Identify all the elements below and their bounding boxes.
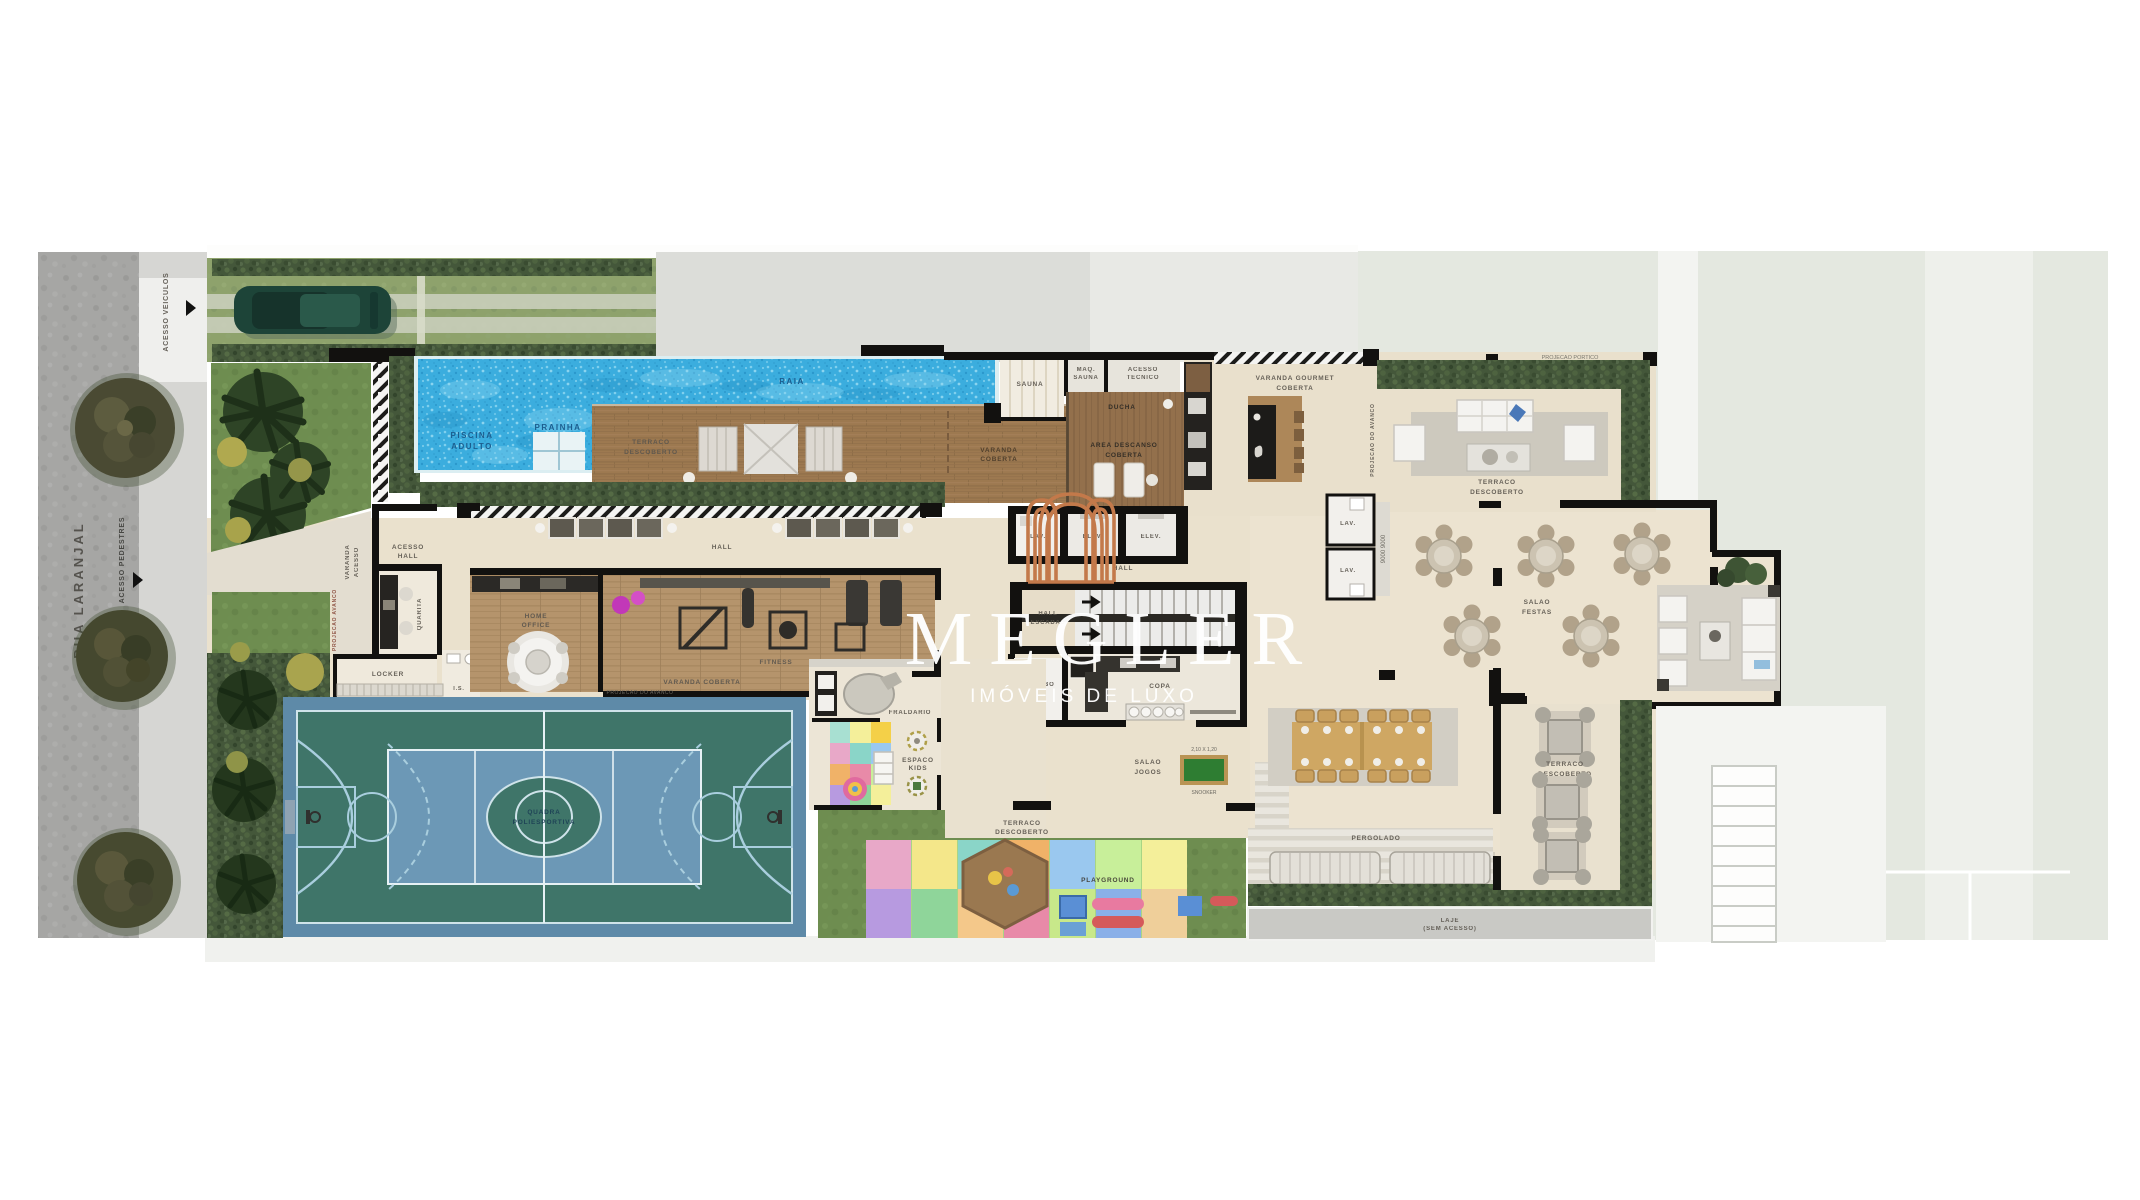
svg-text:DESCOBERTO: DESCOBERTO <box>624 449 678 456</box>
svg-text:DUCHA: DUCHA <box>1108 404 1135 411</box>
svg-text:VARANDA GOURMET: VARANDA GOURMET <box>1256 375 1335 382</box>
svg-text:COBERTA: COBERTA <box>1276 385 1313 392</box>
svg-text:TERRACO: TERRACO <box>1546 761 1584 768</box>
svg-text:HALL: HALL <box>712 544 733 551</box>
svg-text:PLAYGROUND: PLAYGROUND <box>1081 877 1135 884</box>
svg-text:JOGOS: JOGOS <box>1134 769 1161 776</box>
svg-text:SAUNA: SAUNA <box>1016 381 1043 388</box>
svg-text:KIDS: KIDS <box>909 765 928 772</box>
svg-text:ELEV.: ELEV. <box>1141 534 1162 540</box>
svg-text:2,10 X 1,20: 2,10 X 1,20 <box>1191 747 1217 753</box>
svg-text:ACESSO: ACESSO <box>354 547 360 577</box>
svg-text:RAIA: RAIA <box>779 377 805 386</box>
svg-text:PISCINA: PISCINA <box>451 431 494 440</box>
svg-text:VARANDA: VARANDA <box>345 544 351 579</box>
svg-text:TERRACO: TERRACO <box>1003 820 1041 827</box>
svg-text:LOCKER: LOCKER <box>372 671 404 678</box>
svg-text:SALAO: SALAO <box>1135 759 1162 766</box>
svg-text:PERGOLADO: PERGOLADO <box>1351 835 1400 842</box>
svg-text:PROJECAO DO AVANCO: PROJECAO DO AVANCO <box>607 690 674 696</box>
svg-text:IMÓVEIS DE LUXO: IMÓVEIS DE LUXO <box>970 685 1198 707</box>
svg-text:SAUNA: SAUNA <box>1073 375 1098 381</box>
svg-text:FITNESS: FITNESS <box>759 659 792 666</box>
svg-text:HALL: HALL <box>1113 565 1134 572</box>
svg-text:TERRACO: TERRACO <box>632 439 670 446</box>
svg-text:PROJECAO DO AVANCO: PROJECAO DO AVANCO <box>1370 403 1376 476</box>
svg-text:SALAO: SALAO <box>1524 599 1551 606</box>
svg-text:OFFICE: OFFICE <box>522 622 551 629</box>
svg-text:LAJE: LAJE <box>1441 918 1460 924</box>
svg-text:MEGLER: MEGLER <box>905 597 1319 681</box>
svg-text:VARANDA: VARANDA <box>980 447 1018 454</box>
svg-text:COBERTA: COBERTA <box>1105 452 1142 459</box>
svg-text:FRALDARIO: FRALDARIO <box>889 710 932 716</box>
svg-text:QUARITA: QUARITA <box>417 598 423 631</box>
svg-text:ACESSO VEICULOS: ACESSO VEICULOS <box>163 272 170 351</box>
svg-text:COBERTA: COBERTA <box>980 456 1017 463</box>
svg-text:HOME: HOME <box>525 613 548 620</box>
svg-text:ACESSO: ACESSO <box>1128 367 1158 373</box>
svg-text:VARANDA COBERTA: VARANDA COBERTA <box>663 679 740 686</box>
svg-text:I.S.: I.S. <box>453 686 464 692</box>
svg-text:SNOOKER: SNOOKER <box>1191 790 1216 796</box>
svg-text:TERRACO: TERRACO <box>1478 479 1516 486</box>
svg-text:HALL: HALL <box>398 553 419 560</box>
svg-text:ACESSO PEDESTRES: ACESSO PEDESTRES <box>119 517 126 604</box>
svg-text:PRAINHA: PRAINHA <box>535 423 582 432</box>
svg-text:ADULTO: ADULTO <box>451 442 493 451</box>
svg-text:(SEM ACESSO): (SEM ACESSO) <box>1423 926 1476 932</box>
svg-text:DESCOBERTO: DESCOBERTO <box>995 829 1049 836</box>
svg-text:QUADRA: QUADRA <box>527 809 560 816</box>
svg-text:LAV.: LAV. <box>1030 534 1046 540</box>
svg-text:LAV.: LAV. <box>1340 521 1356 527</box>
svg-text:MAQ.: MAQ. <box>1077 367 1096 373</box>
svg-text:AREA DESCANSO: AREA DESCANSO <box>1090 442 1157 449</box>
svg-text:TECNICO: TECNICO <box>1127 375 1160 381</box>
svg-text:POLIESPORTIVA: POLIESPORTIVA <box>513 819 576 826</box>
svg-text:9000 9000: 9000 9000 <box>1381 534 1387 563</box>
svg-text:DESCOBERTO: DESCOBERTO <box>1470 489 1524 496</box>
svg-text:ESPACO: ESPACO <box>902 757 934 764</box>
svg-text:LAV.: LAV. <box>1340 568 1356 574</box>
svg-text:FESTAS: FESTAS <box>1522 609 1552 616</box>
svg-text:PROJECAO AVANCO: PROJECAO AVANCO <box>332 589 338 651</box>
svg-text:ACESSO: ACESSO <box>392 544 424 551</box>
